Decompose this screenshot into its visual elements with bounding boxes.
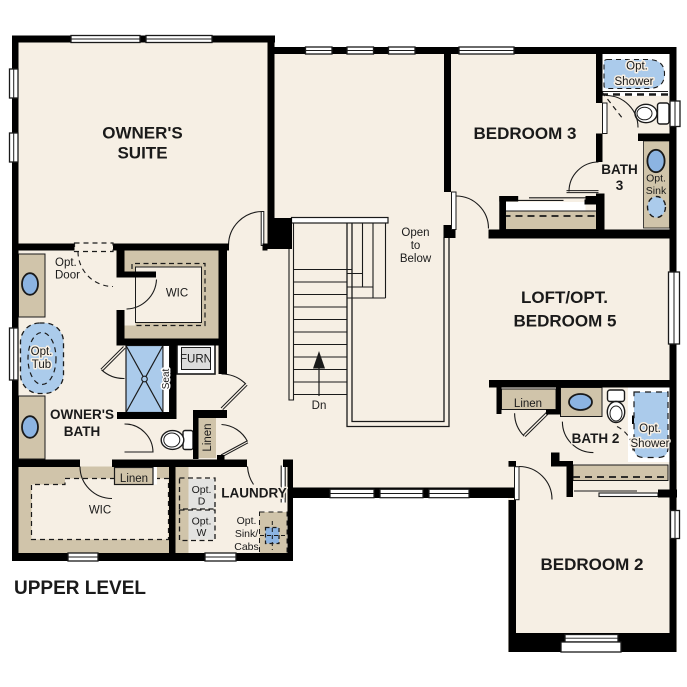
svg-text:BATH 2: BATH 2	[572, 431, 620, 446]
svg-text:Opt.: Opt.	[237, 515, 257, 527]
svg-text:Linen: Linen	[120, 473, 148, 485]
svg-text:Cabs: Cabs	[234, 541, 259, 553]
svg-text:Door: Door	[55, 270, 80, 282]
svg-text:Opt.: Opt.	[55, 257, 77, 269]
svg-text:3: 3	[616, 178, 624, 193]
svg-text:Opt.: Opt.	[639, 423, 661, 435]
svg-text:SUITE: SUITE	[117, 144, 167, 163]
svg-text:Shower: Shower	[631, 438, 670, 450]
svg-text:LOFT/OPT.: LOFT/OPT.	[521, 288, 608, 307]
svg-text:Tub: Tub	[32, 359, 51, 371]
svg-text:OWNER'S: OWNER'S	[50, 407, 114, 422]
svg-text:FURN: FURN	[180, 354, 212, 366]
svg-text:Opt.: Opt.	[626, 61, 648, 73]
svg-text:Shower: Shower	[615, 76, 654, 88]
svg-text:BEDROOM 2: BEDROOM 2	[541, 555, 644, 574]
svg-text:BATH: BATH	[64, 424, 101, 439]
svg-text:Seat: Seat	[161, 368, 172, 389]
svg-text:to: to	[411, 240, 421, 252]
svg-text:Opt.: Opt.	[31, 346, 53, 358]
svg-text:Linen: Linen	[514, 398, 542, 410]
svg-text:OWNER'S: OWNER'S	[102, 124, 183, 143]
svg-text:BATH: BATH	[601, 162, 638, 177]
svg-text:Sink/: Sink/	[235, 528, 258, 540]
svg-text:Opt.: Opt.	[192, 516, 212, 528]
svg-text:UPPER LEVEL: UPPER LEVEL	[14, 578, 146, 599]
svg-text:WIC: WIC	[166, 288, 188, 300]
svg-text:LAUNDRY: LAUNDRY	[221, 486, 287, 501]
svg-text:Linen: Linen	[202, 423, 214, 451]
svg-text:Sink: Sink	[646, 185, 667, 197]
svg-text:Below: Below	[400, 253, 432, 265]
svg-text:WIC: WIC	[89, 505, 111, 517]
svg-text:W: W	[197, 527, 207, 539]
svg-text:BEDROOM 3: BEDROOM 3	[474, 124, 577, 143]
svg-text:Dn: Dn	[312, 400, 327, 412]
svg-text:BEDROOM 5: BEDROOM 5	[514, 312, 617, 331]
svg-text:Opt.: Opt.	[646, 173, 666, 185]
svg-text:D: D	[198, 496, 206, 508]
svg-text:Open: Open	[401, 227, 429, 239]
svg-text:Opt.: Opt.	[192, 484, 212, 496]
